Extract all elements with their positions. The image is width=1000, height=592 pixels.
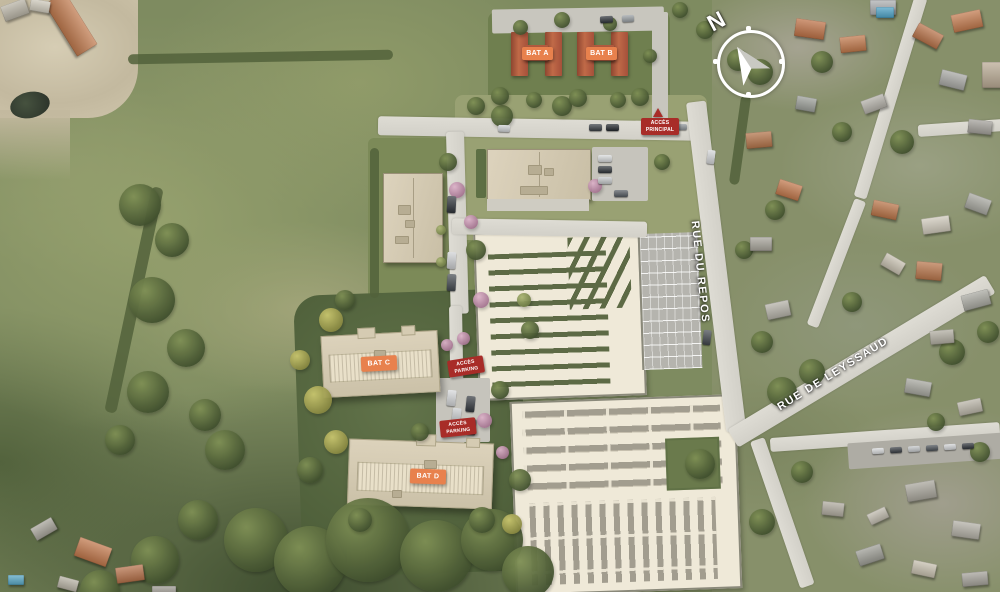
car [598,177,612,184]
car [890,447,902,454]
house-roof [855,543,885,566]
house-roof [115,564,145,584]
rooftop-unit [424,460,437,469]
tree [491,105,513,127]
acces-principal-line2: PRINCIPAL [642,127,678,134]
car [908,446,920,453]
tree [513,20,528,35]
tree [178,500,218,540]
car [926,445,938,452]
tree [411,423,429,441]
tree [335,290,355,310]
house-roof [839,35,867,54]
car [447,274,457,291]
tree [348,508,372,532]
tree [205,430,245,470]
tree [129,277,175,323]
car [447,196,457,213]
house-roof [964,192,992,215]
house-roof [795,95,817,112]
house-roof [938,69,967,91]
tree [155,223,189,257]
tree [466,240,486,260]
tree [927,413,945,431]
house-roof [794,18,826,40]
tree [502,546,554,592]
rooftop-unit [395,236,409,244]
tree [491,381,509,399]
house-roof [915,261,942,281]
car [447,252,457,269]
tree [749,509,775,535]
tree [436,257,446,267]
car [962,443,974,450]
house-roof [960,289,991,312]
tree [436,225,446,235]
tree [473,292,489,308]
house-roof [860,93,887,114]
bat-d-text: BAT D [416,473,439,481]
tree [569,89,587,107]
tree [304,386,332,414]
bat-b-text: BAT B [590,50,613,57]
house-roof [967,119,992,135]
house-roof [29,0,51,14]
tree [672,2,688,18]
house-roof [951,520,981,540]
car [498,125,510,132]
house-roof [982,62,1000,88]
house-roof [876,7,894,18]
house-roof [821,501,844,517]
house-roof [904,378,932,397]
house-roof [0,0,30,22]
tree [509,469,531,491]
tree [631,88,649,106]
tree [297,457,323,483]
tree [496,446,509,459]
car [600,16,613,24]
tree [324,430,348,454]
label-bat-b: BAT B [586,47,617,60]
tree [457,332,470,345]
house-roof [152,586,176,592]
car [622,15,634,23]
tree [439,153,457,171]
house-roof [30,517,58,541]
tree [791,461,813,483]
house-roof [880,252,906,275]
house-roof [911,560,937,579]
house-roof [929,329,954,345]
tree [554,12,570,28]
house-roof [745,131,772,149]
car [589,124,602,131]
label-bat-d: BAT D [410,468,447,484]
car [706,150,716,165]
label-bat-c: BAT C [361,355,398,372]
house-roof [871,199,900,220]
tree [441,339,453,351]
tree [521,321,539,339]
tree [842,292,862,312]
tree [319,308,343,332]
house-roof [950,9,983,33]
house-roof [44,0,97,57]
bat-c-text: BAT C [367,359,390,367]
tree [469,507,495,533]
tree [526,92,542,108]
house-roof [57,576,79,592]
label-acces-principal: ACCÈS PRINCIPAL [641,118,679,135]
car [614,190,628,197]
aerial-site-plan-map: BAT A BAT B BAT C BAT D ACCÈS PRINCIPAL … [0,0,1000,592]
rooftop-unit [544,168,554,176]
tree [105,425,135,455]
tree [654,154,670,170]
house-roof [961,571,988,587]
bat-a-text: BAT A [526,50,549,57]
tree [167,329,205,367]
rooftop-unit [405,220,415,228]
tree [502,514,522,534]
car [446,390,457,407]
tree [643,49,657,63]
house-roof [957,398,983,417]
house-roof [750,237,772,251]
tree [685,449,715,479]
rooftop-unit [520,186,548,195]
car [598,166,612,173]
warning-triangle-icon [653,108,663,117]
car [606,124,619,131]
tree [890,130,914,154]
car [872,448,884,455]
tree [464,215,478,229]
tree [610,92,626,108]
house-roof [866,506,889,525]
tree [832,122,852,142]
car [465,396,476,413]
label-bat-a: BAT A [522,47,553,60]
tree [751,331,773,353]
house-roof [905,480,938,503]
tree [517,293,531,307]
rooftop-unit [392,490,402,498]
tree [127,371,169,413]
tree [189,399,221,431]
rooftop-unit [528,165,542,175]
house-roof [921,215,951,235]
tree [811,51,833,73]
house-roof [912,22,944,49]
house-roof [8,575,24,585]
tree [765,200,785,220]
car [598,155,612,162]
house-roof [775,179,803,202]
tree [467,97,485,115]
rooftop-unit [398,205,411,215]
tree [80,570,120,592]
tree [491,87,509,105]
tree [119,184,161,226]
tree [477,413,492,428]
vegetation-and-vehicles-layer [0,0,1000,592]
house-roof [765,300,792,321]
tree [290,350,310,370]
house-roof [74,537,113,567]
car [944,444,956,451]
tree [977,321,999,343]
